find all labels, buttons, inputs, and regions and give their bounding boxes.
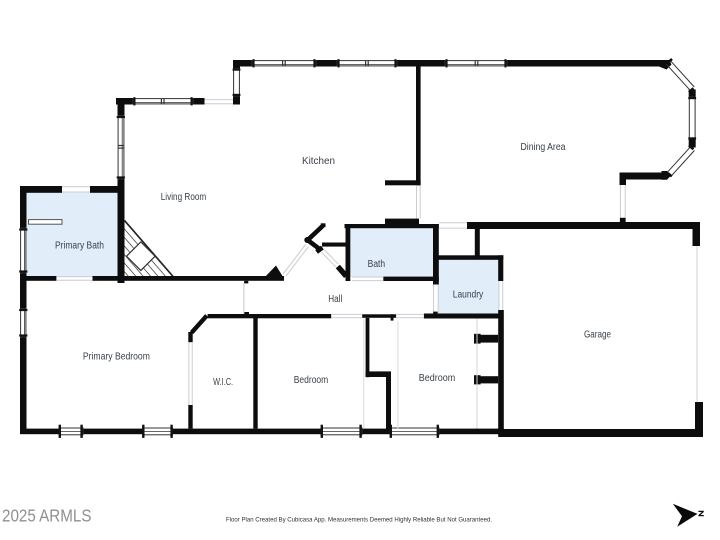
svg-text:Dining Area: Dining Area [521, 142, 566, 153]
svg-text:Primary Bath: Primary Bath [55, 240, 104, 251]
svg-text:Bath: Bath [368, 259, 386, 270]
svg-text:Garage: Garage [584, 329, 611, 340]
svg-text:Bedroom: Bedroom [294, 375, 329, 386]
svg-text:2025 ARMLS: 2025 ARMLS [2, 505, 92, 525]
svg-text:Hall: Hall [328, 294, 342, 305]
svg-text:Kitchen: Kitchen [302, 156, 335, 167]
svg-text:W.I.C.: W.I.C. [213, 377, 233, 388]
svg-text:Floor Plan Created By Cubicasa: Floor Plan Created By Cubicasa App. Meas… [226, 516, 492, 523]
svg-text:Primary Bedroom: Primary Bedroom [83, 352, 150, 363]
svg-text:Bedroom: Bedroom [419, 373, 456, 384]
svg-text:Laundry: Laundry [453, 290, 484, 301]
svg-text:Living Room: Living Room [161, 192, 207, 203]
